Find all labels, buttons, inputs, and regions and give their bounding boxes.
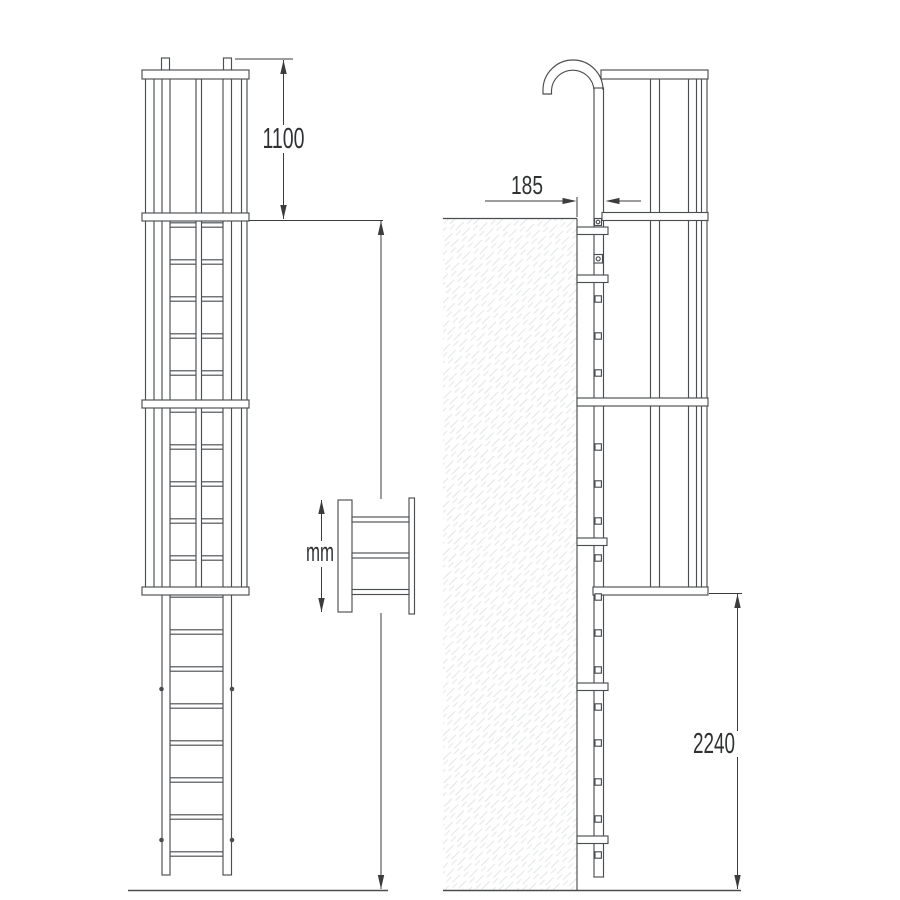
dimension-2240: 2240 [693,594,742,890]
dimension-label-mm: mm [306,537,334,567]
cage-center-strap-front [196,79,202,587]
dimension-1100: 1100 [235,59,383,221]
ladder-segment-detail: mm [306,498,415,614]
front-view-ladder [128,58,388,891]
cage-top-rail-front [142,70,249,79]
detail-left-rail [338,500,352,612]
dimension-label-185: 185 [511,170,543,200]
cage-top-rail-side [601,70,708,79]
cage-side-straps [651,79,708,587]
wall-hatch [443,219,577,891]
detail-right-rail [409,498,415,614]
dimension-185: 185 [485,170,641,217]
drawing-svg: 1100 mm [0,0,900,900]
technical-drawing-cage-ladder: 1100 mm [0,0,900,900]
dimension-label-2240: 2240 [693,728,735,760]
dimension-label-1100: 1100 [263,123,305,155]
right-stile-tip [224,58,232,71]
left-stile-tip [162,58,170,71]
dimension-mm: mm [306,500,334,612]
left-stile-front [162,70,170,875]
walkthrough-hook [543,60,603,94]
side-view-ladder [443,60,741,891]
right-stile-front [223,70,232,875]
